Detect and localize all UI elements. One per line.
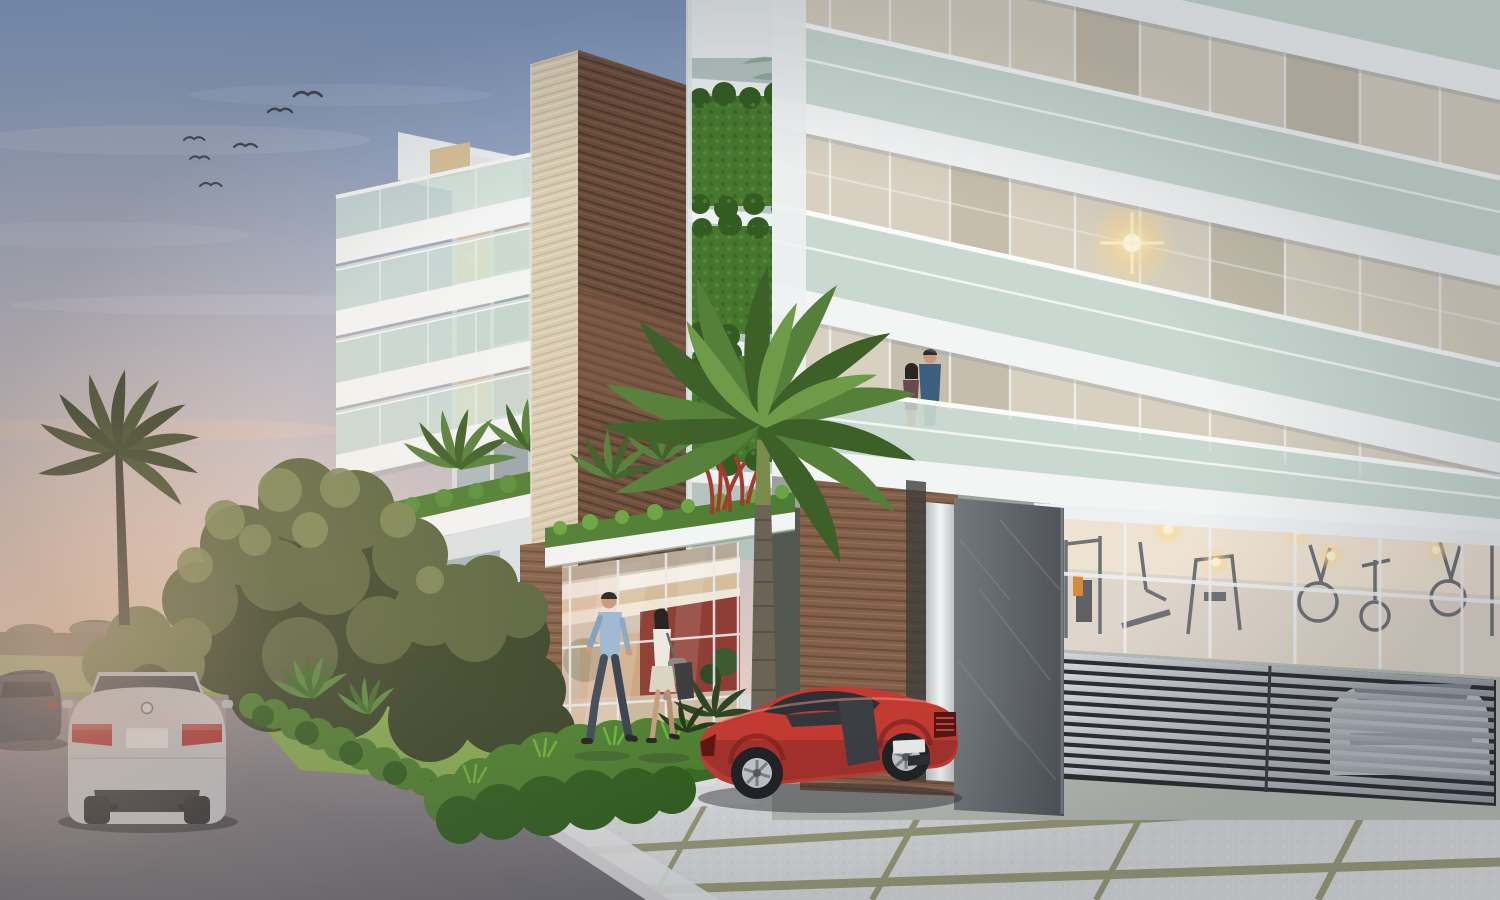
vignette — [0, 0, 1500, 900]
architectural-render — [0, 0, 1500, 900]
render-canvas — [0, 0, 1500, 900]
